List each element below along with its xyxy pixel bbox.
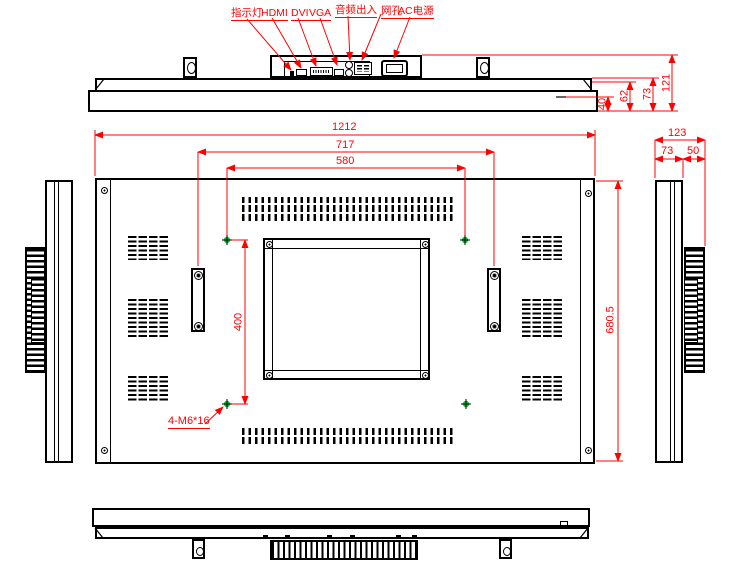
rear-bottom-vent-strip — [242, 428, 456, 446]
bottom-view-bezel-bar — [92, 508, 590, 527]
label-audio: 音频出入 — [335, 5, 377, 18]
rear-grille-left-1 — [128, 236, 170, 260]
rear-grille-right-3 — [522, 376, 564, 403]
rear-right-flange-line — [580, 180, 581, 462]
plate-screw — [266, 372, 273, 379]
flange-screw — [101, 447, 108, 454]
bottom-mount-nub — [327, 535, 332, 539]
label-indicator: 指示灯 — [231, 8, 263, 21]
label-hdmi: HDMI — [261, 8, 288, 21]
dvi-port — [310, 67, 333, 76]
dim-depth-73: 73 — [643, 88, 654, 100]
bracket-hole — [503, 547, 511, 556]
mount-hole-note: 4-M6*16 — [168, 416, 210, 429]
center-plate — [263, 238, 430, 380]
bottom-view-body-strip — [95, 527, 589, 539]
bottom-mount-nub — [396, 535, 401, 539]
ac-inlet-inner — [386, 64, 403, 73]
left-side-line-1 — [54, 182, 55, 461]
bottom-mount-nub — [263, 535, 268, 539]
technical-drawing-monitor: 指示灯 HDMI DVI VGA 音频出入 网孔 AC电源 40 62 73 1… — [0, 0, 740, 572]
rear-left-flange-line — [110, 180, 111, 462]
flange-screw — [101, 187, 108, 194]
rear-grille-left-2 — [128, 299, 170, 337]
flange-screw — [585, 190, 592, 197]
top-view-body-strip — [95, 78, 592, 92]
dim-side-depth-body: 73 — [661, 146, 673, 157]
center-plate-line-left — [272, 240, 273, 378]
bottom-bracket-left — [192, 539, 205, 559]
bottom-mount-nub — [350, 535, 355, 539]
right-side-line-2 — [674, 182, 675, 461]
dim-side-depth-mount: 50 — [687, 146, 699, 157]
right-side-view-body — [655, 180, 683, 463]
bottom-mount-nub — [285, 535, 290, 539]
right-side-mount-inner — [684, 277, 698, 343]
left-side-mount-inner — [31, 277, 45, 343]
audio-jack-2 — [345, 69, 353, 77]
lan-port-a — [357, 65, 362, 72]
rear-grille-right-1 — [522, 236, 564, 260]
dim-height-total: 680.5 — [606, 306, 617, 334]
lan-port-block — [354, 62, 372, 75]
rear-top-vent-strip — [242, 197, 456, 223]
top-view-bracket-left — [183, 57, 197, 78]
bottom-bezel-notch — [560, 521, 568, 526]
dim-width-mount-holes: 580 — [336, 156, 354, 167]
dim-height-mount-holes: 400 — [234, 313, 245, 331]
flange-screw — [585, 447, 592, 454]
bracket-screw — [490, 322, 499, 331]
left-side-view-body — [45, 180, 73, 463]
dim-width-total: 1212 — [332, 122, 356, 133]
rear-grille-right-2 — [522, 299, 564, 337]
center-plate-line-bottom — [265, 370, 428, 371]
dim-width-brackets: 717 — [336, 140, 354, 151]
dim-depth-121: 121 — [662, 74, 673, 92]
lan-port-b — [364, 65, 369, 72]
ac-power-inlet — [381, 60, 408, 77]
bracket-screw — [490, 271, 499, 280]
dim-side-depth-total: 123 — [668, 128, 686, 139]
center-plate-line-top — [265, 248, 428, 249]
plate-screw — [422, 241, 429, 248]
hdmi-port — [296, 69, 307, 76]
vga-port — [334, 69, 344, 76]
right-side-line-1 — [670, 182, 671, 461]
bracket-hole — [187, 62, 196, 74]
bracket-screw — [194, 271, 203, 280]
dim-depth-40: 40 — [598, 98, 609, 110]
plate-screw — [266, 241, 273, 248]
label-vga: VGA — [309, 8, 331, 21]
dvi-pins — [313, 70, 329, 73]
bottom-mount-nub — [412, 535, 417, 539]
indicator-light — [290, 71, 294, 76]
bracket-hole — [196, 547, 204, 556]
center-plate-line-right — [420, 240, 421, 378]
bottom-bracket-right — [499, 539, 512, 559]
top-view-bracket-right — [476, 57, 490, 78]
label-dvi: DVI — [291, 8, 309, 21]
audio-jack-1 — [345, 61, 353, 69]
rear-grille-left-3 — [128, 376, 170, 403]
bracket-hole — [480, 62, 489, 74]
label-ac-power: AC电源 — [398, 6, 434, 19]
left-side-line-2 — [58, 182, 59, 461]
bracket-screw — [194, 322, 203, 331]
dim-depth-62: 62 — [620, 90, 631, 102]
bottom-vent-box — [270, 540, 418, 560]
top-view-bezel-bar — [88, 90, 598, 112]
plate-screw — [422, 372, 429, 379]
